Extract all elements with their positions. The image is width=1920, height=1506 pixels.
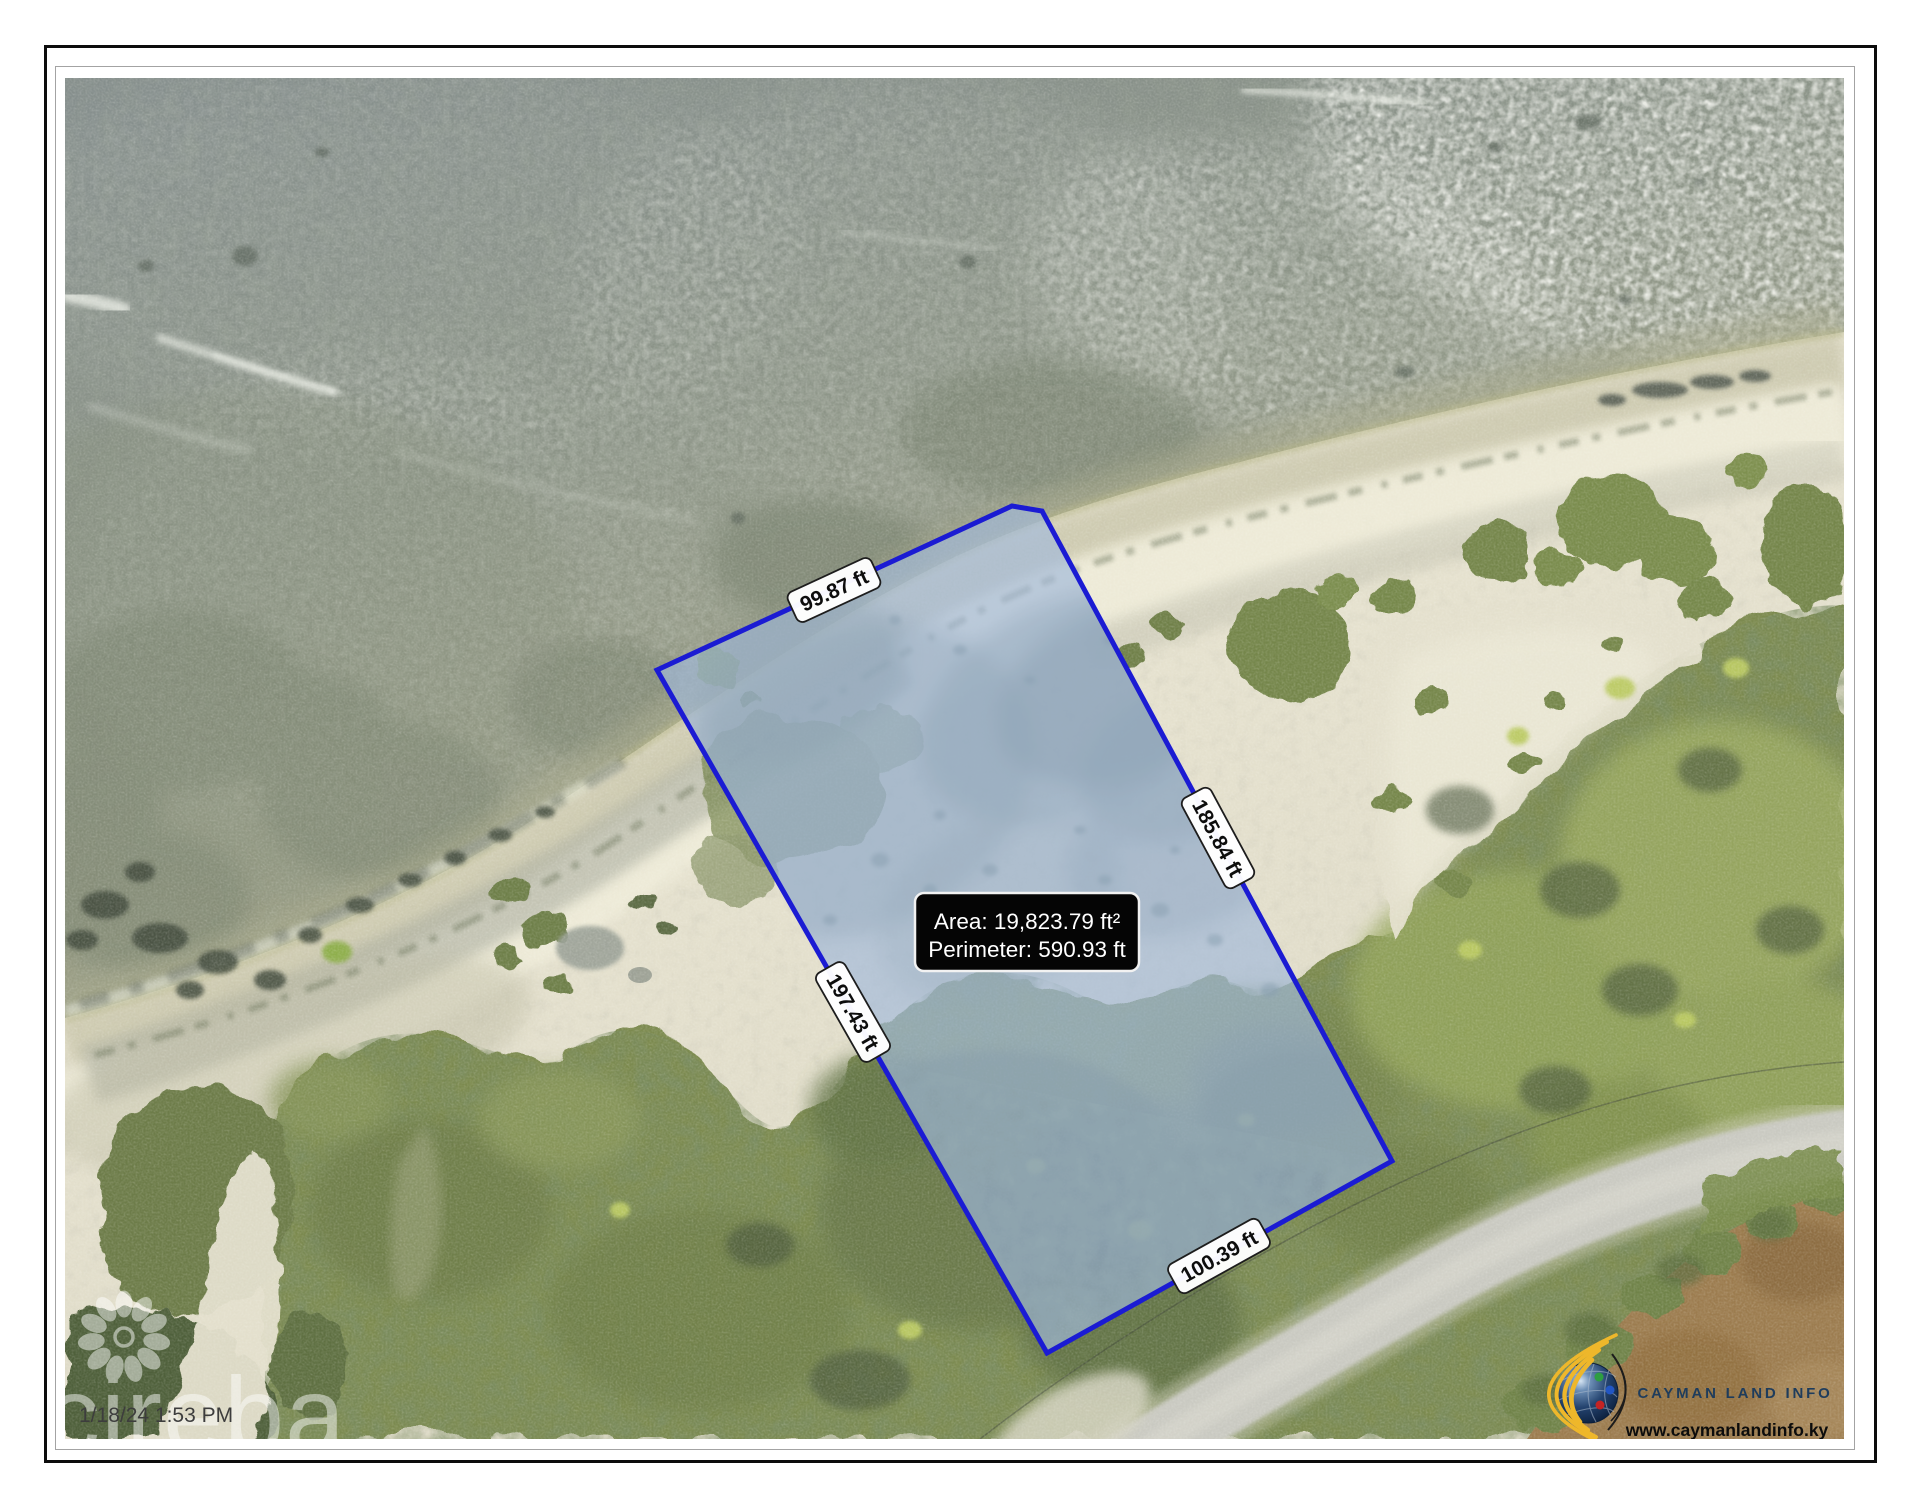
svg-text:www.caymanlandinfo.ky: www.caymanlandinfo.ky: [1625, 1420, 1829, 1439]
svg-text:1/18/24 1:53 PM: 1/18/24 1:53 PM: [79, 1404, 233, 1427]
svg-text:Perimeter: 590.93 ft: Perimeter: 590.93 ft: [928, 937, 1126, 962]
svg-text:Area: 19,823.79 ft²: Area: 19,823.79 ft²: [934, 909, 1121, 934]
svg-text:CAYMAN LAND INFO: CAYMAN LAND INFO: [1637, 1385, 1832, 1402]
